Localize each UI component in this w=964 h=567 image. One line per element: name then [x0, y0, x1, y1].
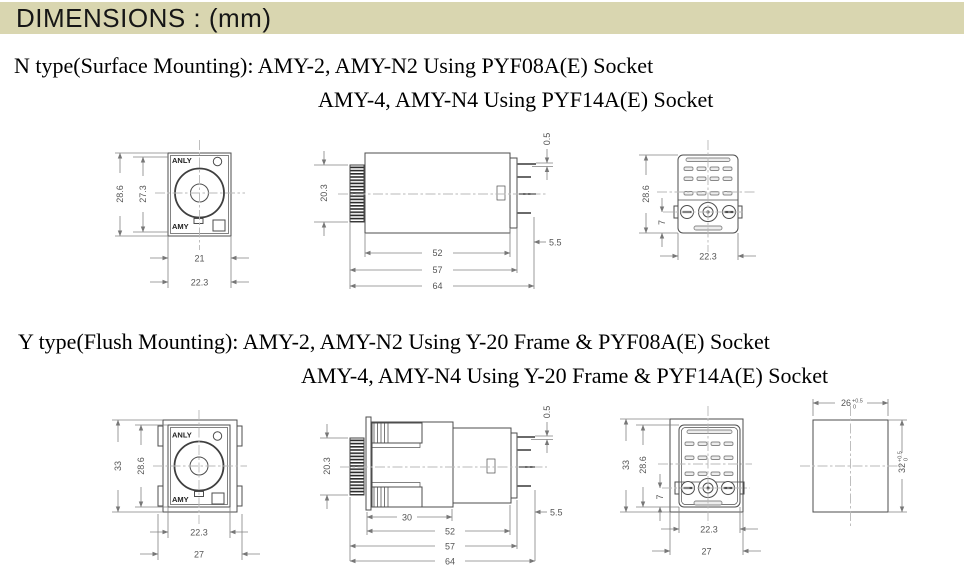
y-type-heading-line2: AMY-4, AMY-N4 Using Y-20 Frame & PYF14A(… [301, 363, 828, 389]
dim-outer-width: 22.3 [191, 278, 209, 288]
n-type-socket-view-drawing: 28.6 7 22.3 [615, 130, 790, 270]
dim-cutout-height-group: 32 +0.5 0 [897, 451, 910, 473]
dim-screw-offset: 7 [655, 494, 665, 499]
dim-knob-height: 20.3 [319, 184, 329, 202]
n-type-side-view-drawing: 20.3 0.5 5.5 52 57 64 [300, 125, 570, 300]
dim-inner-width: 21 [194, 254, 204, 264]
dim-screw-offset: 7 [657, 220, 667, 225]
y-type-side-view-drawing: 20.3 0.5 5.5 30 52 57 64 [315, 398, 575, 567]
dim-inner-width: 22.3 [190, 528, 208, 538]
y-type-front-view-drawing: ANLY AMY 33 28.6 22.3 27 [95, 398, 295, 567]
y-type-heading-line1: Y type(Flush Mounting): AMY-2, AMY-N2 Us… [18, 329, 770, 355]
dim-width: 22.3 [699, 252, 717, 262]
section-title-bar: DIMENSIONS : (mm) [0, 2, 964, 34]
frame-clip-top [371, 423, 422, 448]
dim-outer-width: 27 [701, 547, 711, 557]
y-type-socket-view-drawing: 33 28.6 7 22.3 27 [610, 398, 795, 567]
dim-outer-height: 33 [621, 460, 631, 470]
brand-label-top: ANLY [172, 156, 192, 165]
dim-pin-length: 5.5 [549, 238, 562, 248]
dim-frame-depth: 30 [402, 513, 412, 523]
relay-side-outline [350, 153, 536, 233]
dimensions: 33 28.6 22.3 27 [112, 420, 260, 560]
dim-total-length: 64 [432, 281, 442, 291]
dim-inner-height: 28.6 [638, 456, 648, 474]
dim-height: 28.6 [641, 185, 651, 203]
dim-inner-width: 22.3 [700, 525, 718, 535]
n-type-heading-line2: AMY-4, AMY-N4 Using PYF14A(E) Socket [318, 87, 713, 113]
dim-outer-width: 27 [194, 550, 204, 560]
center-lines [657, 140, 755, 252]
page-title: DIMENSIONS : (mm) [0, 2, 964, 34]
brand-label-bottom: AMY [172, 222, 189, 231]
dim-outer-height: 28.6 [115, 185, 125, 203]
n-type-heading-line1: N type(Surface Mounting): AMY-2, AMY-N2 … [14, 53, 653, 79]
socket-outline [670, 419, 744, 512]
dim-cutout-width: 26 [841, 398, 851, 408]
dim-pin-thickness: 0.5 [542, 133, 552, 146]
dim-pin-thickness: 0.5 [542, 406, 552, 419]
relay-side-outline [350, 417, 535, 510]
dim-inner-height: 27.3 [138, 185, 148, 203]
dim-outer-height: 33 [113, 461, 123, 471]
frame-clip-bottom [371, 483, 422, 508]
dimensions: 28.6 27.3 21 22.3 [115, 153, 249, 288]
dim-body-length: 52 [445, 527, 455, 537]
brand-label-top: ANLY [172, 431, 192, 440]
dim-body-knob-length: 57 [432, 265, 442, 275]
dim-cutout-width-tol-lower: 0 [853, 405, 856, 411]
dim-inner-height: 28.6 [136, 457, 146, 475]
dim-cutout-height-tol-lower: 0 [904, 458, 910, 461]
dim-knob-height: 20.3 [322, 457, 332, 475]
dim-pin-length: 5.5 [550, 508, 563, 518]
dimensions: 26 +0.5 0 32 +0.5 0 [813, 398, 910, 512]
dim-total-length: 64 [445, 557, 455, 567]
datasheet-page: DIMENSIONS : (mm) N type(Surface Mountin… [0, 0, 964, 567]
timer-knob [350, 438, 364, 495]
brand-label-bottom: AMY [172, 495, 189, 504]
dim-body-knob-length: 57 [445, 542, 455, 552]
dim-cutout-height: 32 [897, 463, 907, 473]
center-lines [800, 406, 905, 526]
panel-cutout-drawing: 26 +0.5 0 32 +0.5 0 [795, 396, 964, 536]
timer-knob [350, 165, 364, 222]
terminal-slots [685, 442, 733, 476]
n-type-front-view-drawing: ANLY AMY 28.6 27.3 21 22.3 [100, 128, 260, 300]
mounting-frame-plate [366, 417, 371, 510]
dim-body-length: 52 [432, 248, 442, 258]
